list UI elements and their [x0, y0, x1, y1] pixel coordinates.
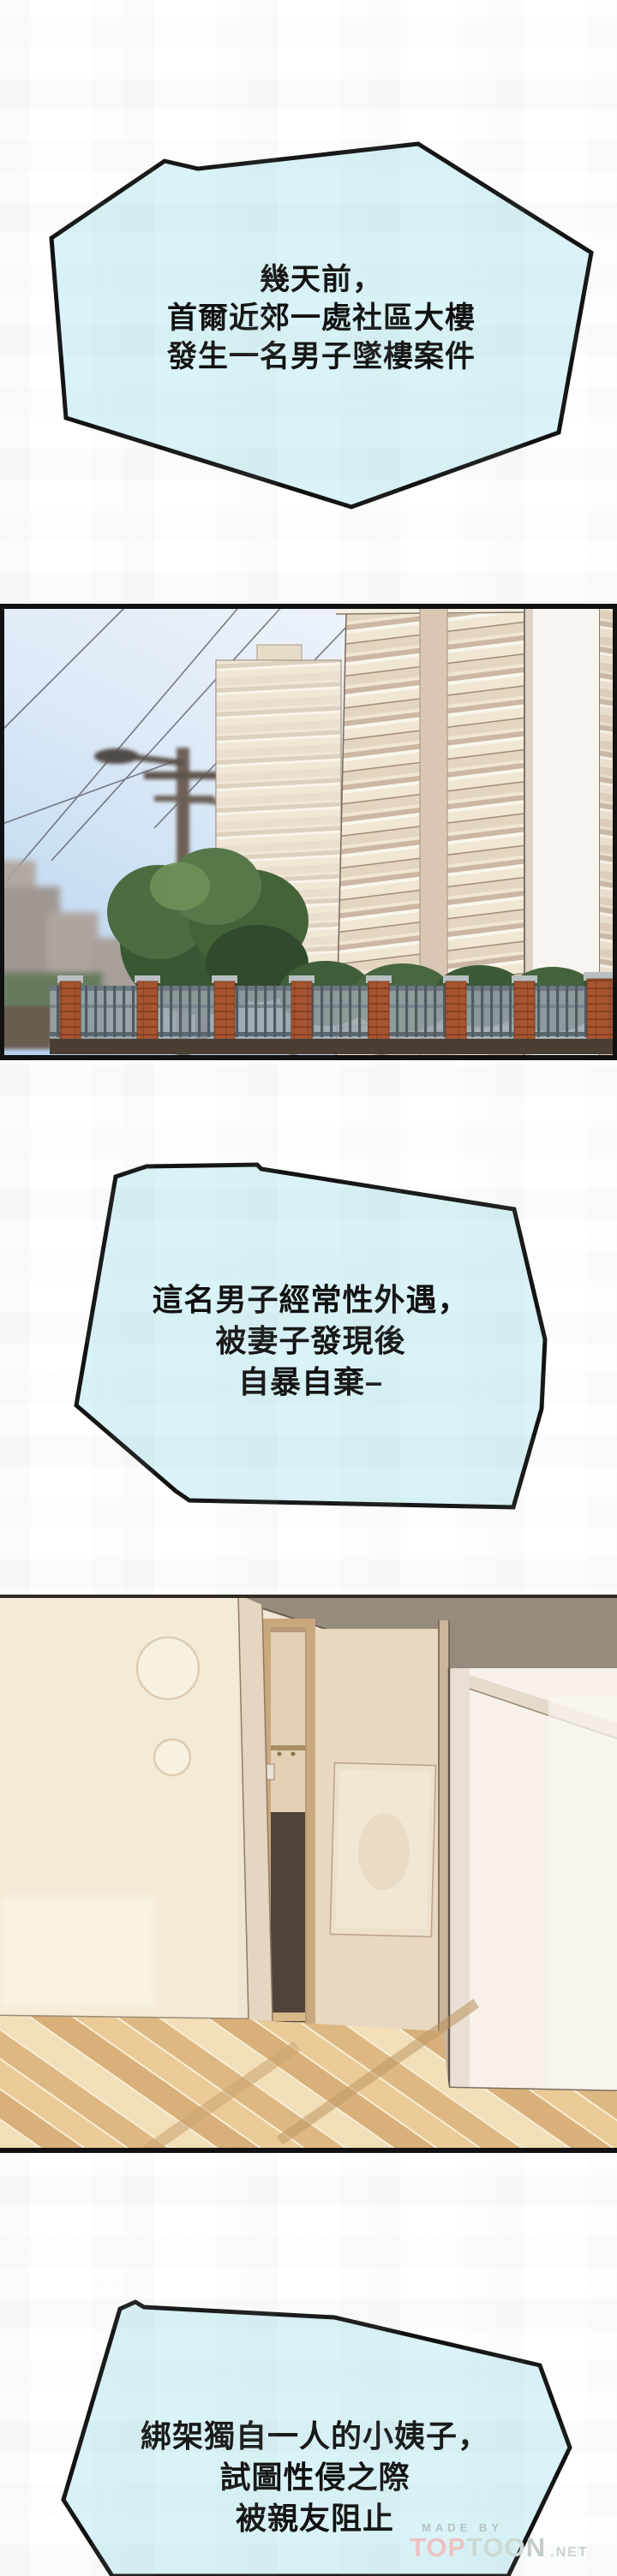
- hallway-interior-panel: [0, 1595, 617, 2153]
- sliding-door-partition: [449, 1668, 617, 2091]
- wall-light-spot: [154, 1739, 190, 1775]
- wall-light-spot: [137, 1637, 199, 1699]
- left-wall: [0, 1595, 273, 2023]
- narration-line: 被妻子發現後: [64, 1321, 557, 1362]
- narration-bubble-2: 這名男子經常性外遇， 被妻子發現後 自暴自棄–: [64, 1154, 557, 1521]
- narration-line: 綁架獨自一人的小姨子，: [47, 2416, 583, 2457]
- narration-text-2: 這名男子經常性外遇， 被妻子發現後 自暴自棄–: [64, 1279, 557, 1403]
- hallway-interior-illustration: [0, 1595, 617, 2153]
- narration-bubble-1: 幾天前， 首爾近郊一處社區大樓 發生一名男子墜樓案件: [39, 127, 604, 516]
- narration-line: 被親友阻止: [47, 2498, 583, 2539]
- narration-text-1: 幾天前， 首爾近郊一處社區大樓 發生一名男子墜樓案件: [39, 260, 604, 376]
- wall-poster: [330, 1763, 435, 1937]
- wall-light-patch: [0, 1896, 154, 2007]
- narration-line: 首爾近郊一處社區大樓: [39, 299, 604, 337]
- narration-line: 這名男子經常性外遇，: [64, 1279, 557, 1321]
- narration-line: 試圖性侵之際: [47, 2457, 583, 2498]
- apartment-exterior-panel: [0, 604, 617, 1060]
- narration-text-3: 綁架獨自一人的小姨子， 試圖性侵之際 被親友阻止: [47, 2416, 583, 2539]
- apartment-exterior-illustration: [0, 604, 617, 1060]
- narration-line: 發生一名男子墜樓案件: [39, 337, 604, 376]
- narration-line: 幾天前，: [39, 260, 604, 299]
- webtoon-page: { "page": {"width": 720, "height": 3008,…: [0, 0, 617, 2576]
- narration-bubble-3: 綁架獨自一人的小姨子， 試圖性侵之際 被親友阻止: [47, 2293, 583, 2576]
- narration-line: 自暴自棄–: [64, 1362, 557, 1403]
